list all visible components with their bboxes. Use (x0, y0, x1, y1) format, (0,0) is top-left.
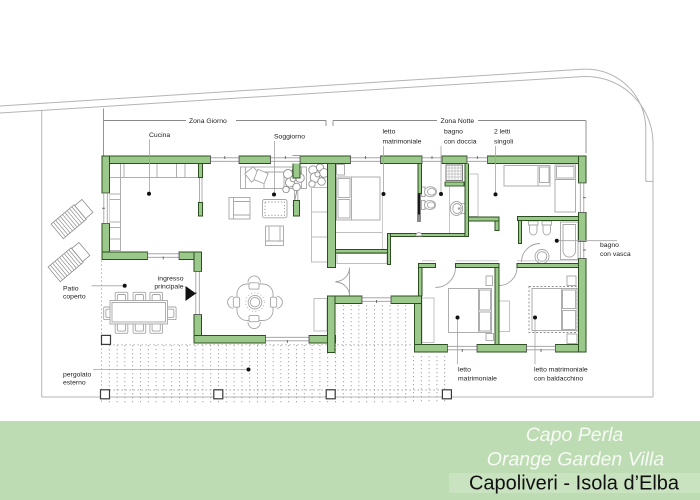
svg-text:con baldacchino: con baldacchino (534, 376, 583, 383)
svg-text:bagno: bagno (600, 242, 619, 249)
svg-text:matrimoniale: matrimoniale (458, 376, 497, 383)
svg-text:Soggiorno: Soggiorno (274, 134, 305, 141)
svg-text:Capoliveri - Isola d’Elba: Capoliveri - Isola d’Elba (469, 473, 680, 495)
svg-text:letto matrimoniale: letto matrimoniale (534, 367, 588, 374)
svg-text:con doccia: con doccia (444, 139, 477, 146)
svg-text:coperto: coperto (63, 294, 86, 301)
svg-text:Patio: Patio (63, 286, 79, 293)
svg-text:letto: letto (383, 129, 396, 136)
svg-text:Zona Giorno: Zona Giorno (189, 118, 227, 125)
svg-text:esterno: esterno (63, 380, 86, 387)
svg-text:2 letti: 2 letti (494, 129, 511, 136)
svg-text:matrimoniale: matrimoniale (383, 139, 422, 146)
svg-text:con vasca: con vasca (600, 251, 631, 258)
svg-text:ingresso: ingresso (158, 276, 184, 283)
svg-text:Zona Notte: Zona Notte (441, 118, 475, 125)
svg-text:Orange Garden Villa: Orange Garden Villa (487, 449, 665, 471)
svg-text:Cucina: Cucina (149, 132, 170, 139)
svg-text:singoli: singoli (494, 139, 514, 146)
svg-text:pergolato: pergolato (63, 372, 92, 379)
svg-text:letto: letto (458, 367, 471, 374)
svg-text:principale: principale (154, 284, 183, 291)
svg-text:bagno: bagno (444, 129, 463, 136)
svg-text:Capo Perla: Capo Perla (526, 424, 624, 446)
